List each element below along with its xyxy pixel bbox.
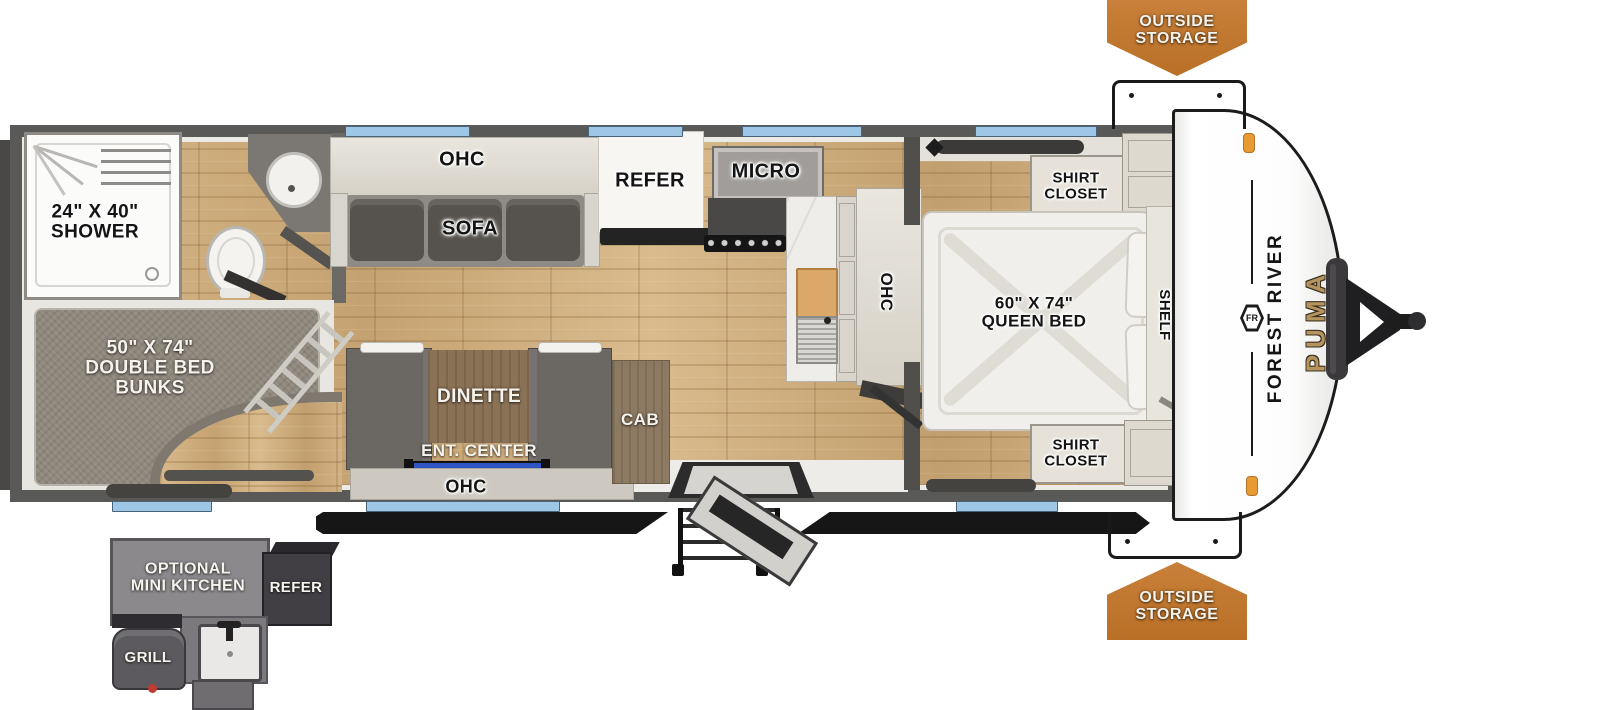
forest-river-logotype: FOREST RIVER: [1266, 233, 1286, 403]
refer-vent: [600, 228, 710, 245]
outside-storage-badge-bottom: OUTSIDESTORAGE: [1107, 562, 1247, 640]
step-foot: [672, 564, 684, 576]
bedroom-wall: [904, 137, 920, 225]
marker-light-icon: [1243, 133, 1255, 153]
storage-door-outline-bottom: [1108, 512, 1242, 559]
entry-mat-inner: [684, 466, 798, 494]
window: [112, 501, 212, 512]
bunk-bench: [164, 470, 314, 481]
grill-knob-icon: [148, 684, 157, 693]
awning-bar-right: [794, 512, 1150, 534]
mini-refer-label: REFER: [270, 580, 323, 596]
kitchen-sink-icon: [796, 316, 838, 364]
window: [345, 126, 470, 137]
micro-label: MICRO: [732, 162, 801, 183]
ohc-top-label: OHC: [439, 150, 485, 171]
shirt-closet-top-label: SHIRTCLOSET: [1044, 170, 1107, 201]
outside-storage-badge-top: OUTSIDESTORAGE: [1107, 0, 1247, 76]
queen-bed-label: 60" X 74"QUEEN BED: [982, 294, 1087, 329]
window: [742, 126, 862, 137]
propane-cover: [1326, 258, 1348, 380]
grill-bracket: [112, 614, 182, 628]
shower-label: 24" X 40"SHOWER: [51, 202, 139, 242]
mini-sink-icon: [198, 624, 262, 682]
logo-accent-line: [1251, 352, 1253, 456]
mini-sink-tank: [192, 680, 254, 710]
window: [956, 501, 1058, 512]
kitchen-ohc-label: OHC: [877, 273, 895, 312]
dinette-seat-left: [346, 348, 432, 470]
cab-label: CAB: [621, 411, 659, 429]
shower-rails-icon: [101, 149, 171, 191]
refer-label: REFER: [615, 171, 685, 192]
window: [975, 126, 1097, 137]
bath-sink-icon: [266, 152, 322, 208]
dinette-seat-right: [528, 348, 612, 470]
shower-drain-icon: [145, 267, 159, 281]
sofa-label: SOFA: [442, 219, 498, 240]
shelf-label: SHELF: [1156, 289, 1172, 340]
mini-kitchen-label: OPTIONALMINI KITCHEN: [131, 561, 245, 594]
shirt-closet-bottom-label: SHIRTCLOSET: [1044, 437, 1107, 468]
range: [708, 198, 786, 238]
grill-label: GRILL: [125, 650, 172, 666]
range-burners-icon: [704, 235, 786, 252]
cutting-board-icon: [796, 268, 838, 318]
marker-light-icon: [1246, 476, 1258, 496]
ohc-bottom-cabinet: [350, 468, 634, 500]
ent-center-label: ENT. CENTER: [421, 442, 537, 460]
dinette-label: DINETTE: [437, 387, 521, 407]
awning-bar-left: [316, 512, 668, 534]
bunk-bench: [106, 484, 232, 498]
window: [588, 126, 683, 137]
trailer-hitch: [1320, 250, 1430, 400]
storage-door-outline-top: [1112, 80, 1246, 129]
bunks-label: 50" X 74"DOUBLE BEDBUNKS: [85, 338, 215, 397]
dinette-headrest: [538, 342, 602, 353]
sofa-armrest: [330, 193, 348, 267]
logo-accent-line: [1251, 180, 1253, 284]
dinette-headrest: [360, 342, 424, 353]
bedroom-bench: [926, 479, 1036, 492]
kitchen-cabinet-doors: [836, 196, 858, 382]
bedroom-tv: [936, 140, 1084, 154]
floorplan-canvas: 24" X 40"SHOWER 50" X 74"DOUBLE BEDBUNKS…: [0, 0, 1600, 710]
window: [366, 501, 560, 512]
ohc-bottom-label: OHC: [445, 478, 486, 497]
